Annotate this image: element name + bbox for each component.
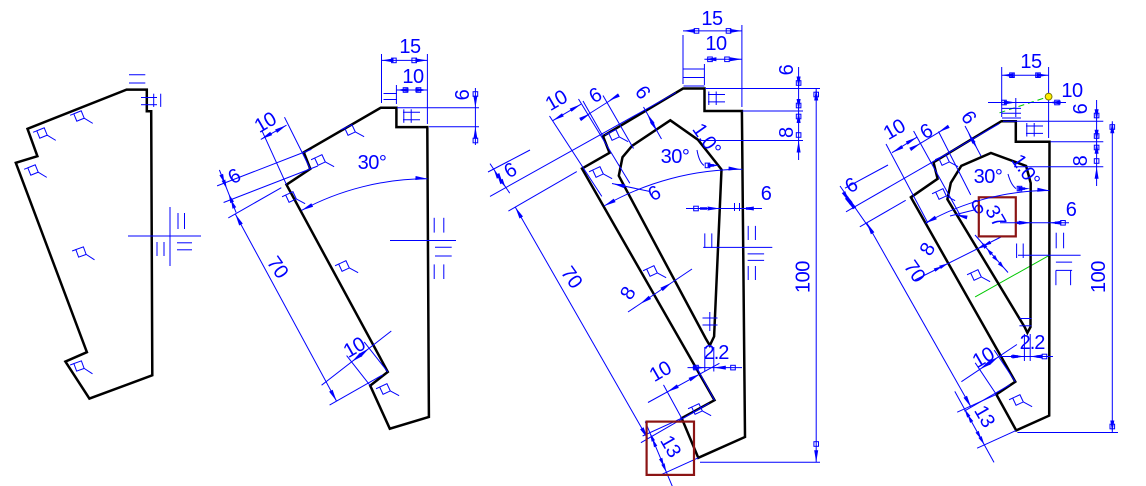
svg-text:15: 15 [701,8,723,30]
svg-text:30°: 30° [974,166,1003,188]
svg-text:30°: 30° [358,152,387,174]
svg-text:15: 15 [399,36,421,58]
svg-text:6: 6 [1070,103,1092,114]
svg-text:2.2: 2.2 [1020,332,1046,354]
svg-text:6: 6 [452,89,474,100]
svg-text:100: 100 [1088,261,1110,293]
svg-text:15: 15 [1020,51,1042,73]
svg-text:6: 6 [1066,199,1077,221]
svg-text:30°: 30° [661,146,690,168]
svg-text:6: 6 [761,183,772,205]
svg-text:8: 8 [1070,155,1092,166]
svg-text:6: 6 [776,64,798,75]
svg-text:2.2: 2.2 [704,342,730,364]
svg-text:10: 10 [705,33,727,55]
svg-text:8: 8 [776,127,798,138]
svg-text:10: 10 [1061,80,1083,102]
svg-text:10: 10 [402,66,424,88]
svg-text:100: 100 [793,261,815,293]
